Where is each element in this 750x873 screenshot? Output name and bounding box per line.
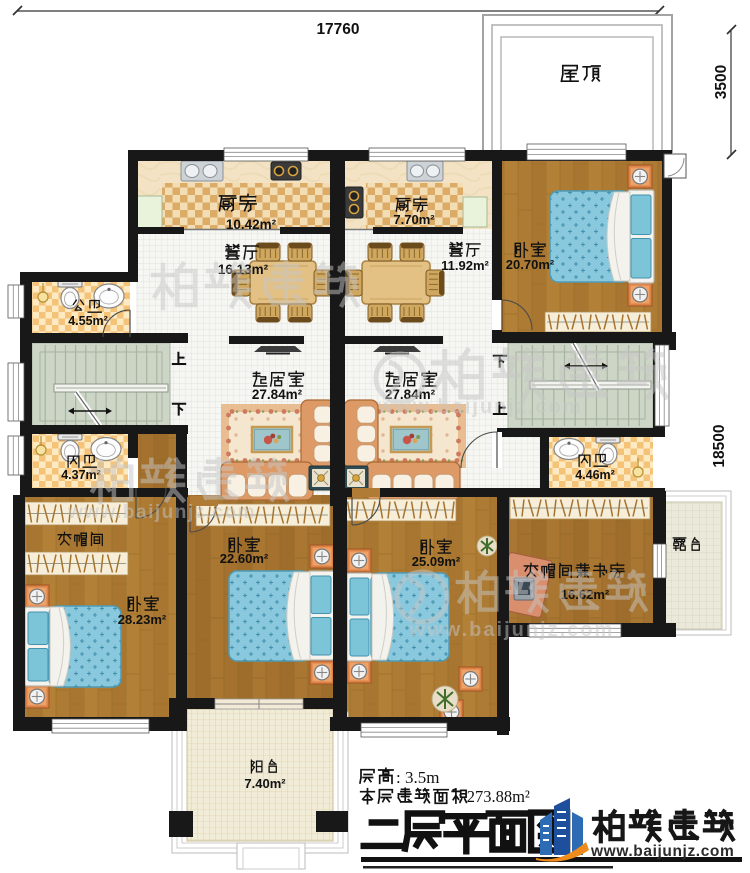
svg-text:www.baijunjz.com: www.baijunjz.com xyxy=(377,396,583,418)
svg-text:4.46m²: 4.46m² xyxy=(575,468,615,482)
svg-text:18500: 18500 xyxy=(711,424,728,467)
svg-text:: 273.88m²: : 273.88m² xyxy=(458,787,530,806)
svg-text:27.84m²: 27.84m² xyxy=(252,387,303,402)
svg-text:22.60m²: 22.60m² xyxy=(220,551,269,566)
svg-text:17760: 17760 xyxy=(316,21,359,38)
svg-text:11.92m²: 11.92m² xyxy=(441,258,489,273)
svg-text:7.40m²: 7.40m² xyxy=(244,776,286,791)
svg-text:10.42m²: 10.42m² xyxy=(226,217,277,232)
svg-text:www.baijunjz.com: www.baijunjz.com xyxy=(409,619,615,641)
svg-text:7.70m²: 7.70m² xyxy=(393,212,435,227)
svg-text:25.09m²: 25.09m² xyxy=(412,554,461,569)
svg-text:20.70m²: 20.70m² xyxy=(506,257,555,272)
svg-text:: 3.5m: : 3.5m xyxy=(396,768,439,787)
svg-text:4.55m²: 4.55m² xyxy=(68,314,108,328)
svg-text:3500: 3500 xyxy=(713,65,730,99)
svg-text:www.baijunjz.com: www.baijunjz.com xyxy=(67,502,256,523)
svg-text:28.23m²: 28.23m² xyxy=(118,612,167,627)
svg-text:www.baijunjz.com: www.baijunjz.com xyxy=(590,843,734,860)
